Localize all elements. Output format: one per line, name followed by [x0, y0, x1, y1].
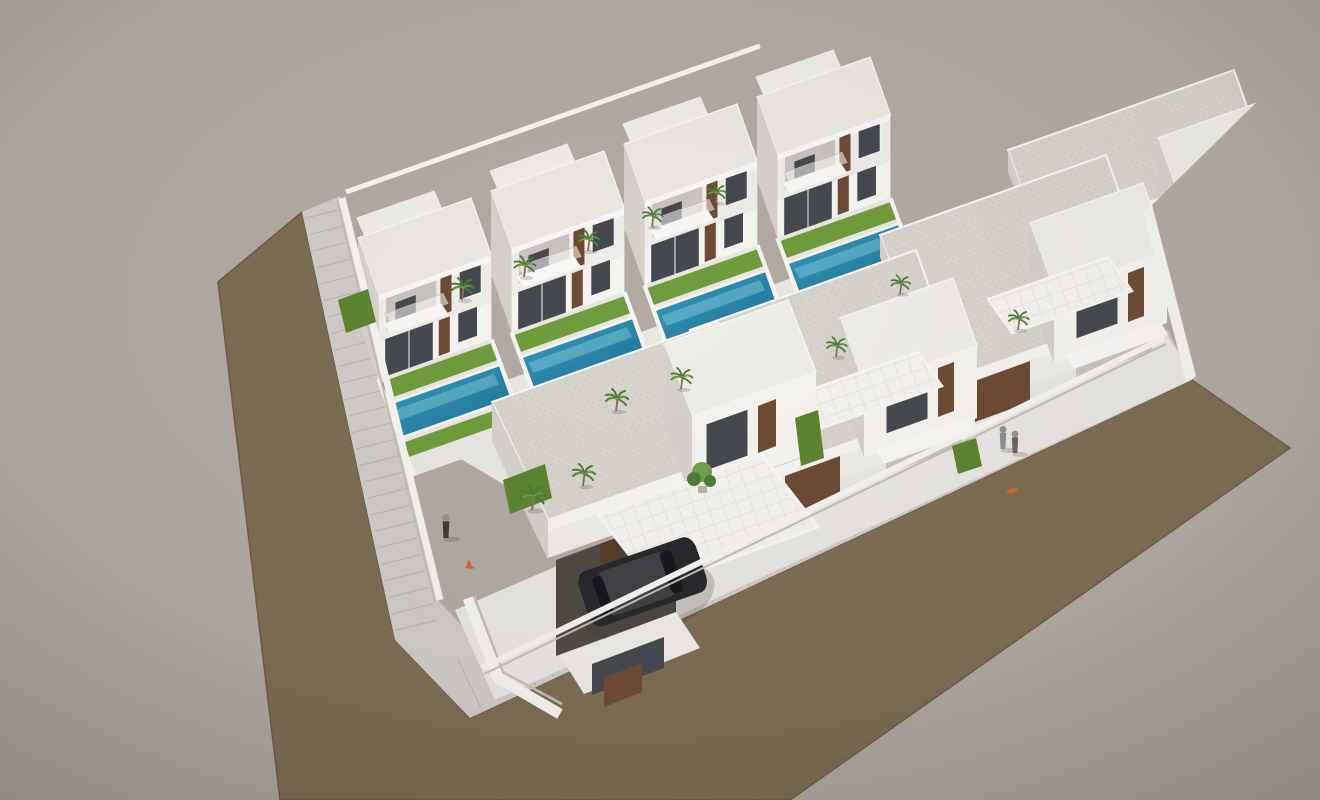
render-scene [0, 0, 1320, 800]
architectural-render [0, 0, 1320, 800]
vignette-overlay [0, 0, 1320, 800]
